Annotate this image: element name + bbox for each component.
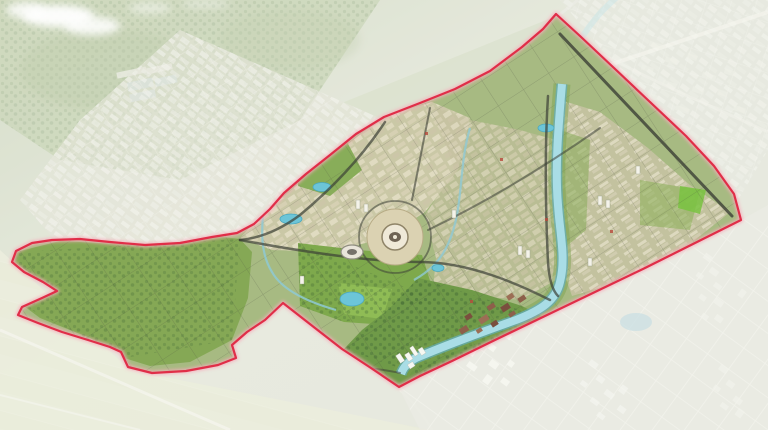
secondary-arena [341, 245, 363, 259]
masterplan-map [0, 0, 768, 430]
faded-pond [620, 313, 652, 331]
cloud [64, 17, 120, 35]
pond [340, 292, 364, 306]
masterplan-render [0, 0, 768, 430]
pond [432, 265, 444, 272]
cloud-wisp [128, 2, 172, 14]
stadium-center-dot [393, 235, 397, 239]
cloud [6, 2, 46, 18]
arena-field [347, 249, 357, 255]
central-stadium [367, 209, 423, 265]
